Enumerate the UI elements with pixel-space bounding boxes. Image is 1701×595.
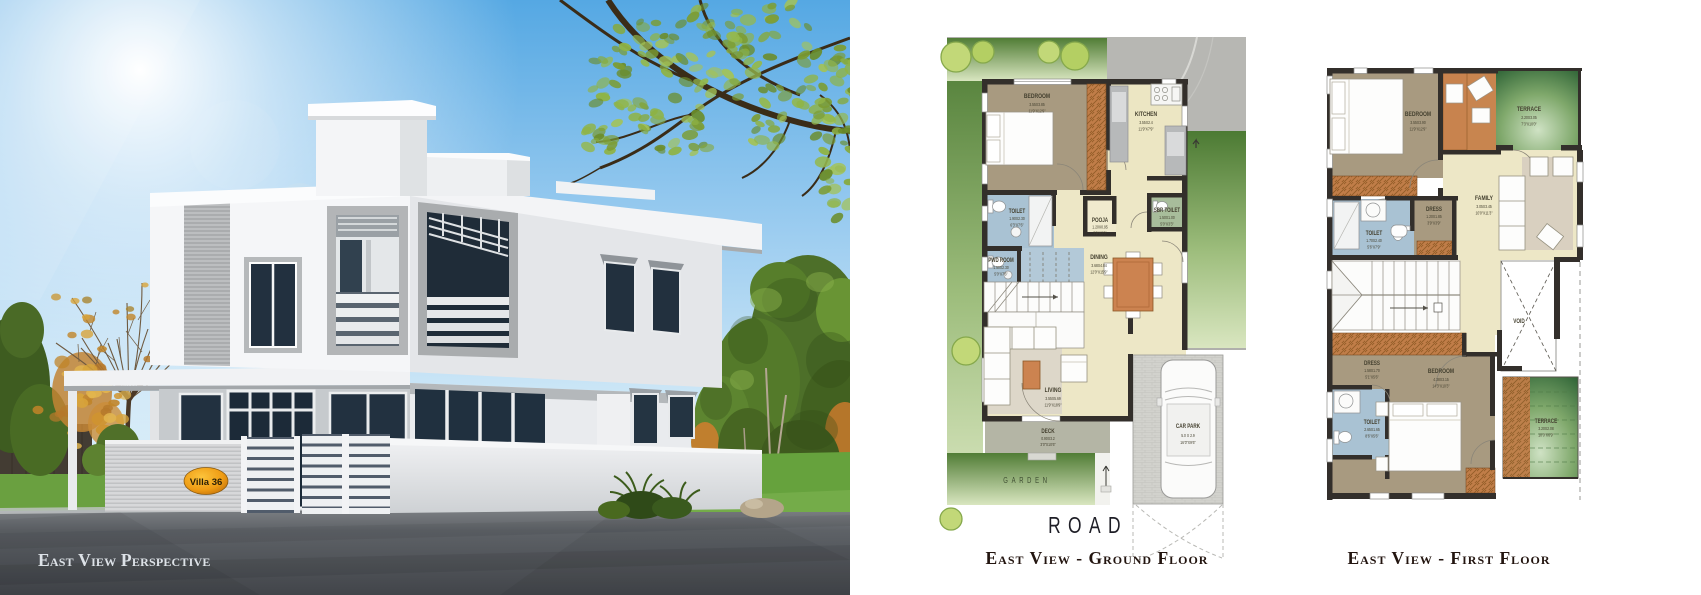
svg-text:1.20X0.95: 1.20X0.95	[1092, 224, 1108, 230]
svg-text:FAMILY: FAMILY	[1475, 195, 1493, 202]
svg-text:6'3"X7'6": 6'3"X7'6"	[1010, 222, 1024, 228]
svg-text:3'9"X3'0": 3'9"X3'0"	[1093, 230, 1107, 236]
svg-text:14'3"X10'3": 14'3"X10'3"	[1432, 383, 1450, 389]
svg-text:DRESS: DRESS	[1426, 206, 1442, 213]
svg-text:SBR TOILET: SBR TOILET	[1154, 207, 1181, 214]
svg-text:TERRACE: TERRACE	[1517, 106, 1541, 113]
svg-text:BEDROOM: BEDROOM	[1024, 93, 1050, 100]
svg-text:11'9"X7'9": 11'9"X7'9"	[1138, 126, 1154, 132]
svg-text:TOILET: TOILET	[1366, 230, 1383, 237]
svg-text:12'0"X15'9": 12'0"X15'9"	[1090, 269, 1108, 275]
svg-text:10'0"X6'9": 10'0"X6'9"	[1538, 432, 1554, 438]
svg-text:8'6"X5'6": 8'6"X5'6"	[1365, 433, 1379, 439]
svg-text:3.55X3.90: 3.55X3.90	[1410, 119, 1426, 125]
svg-text:PWD ROOM: PWD ROOM	[988, 257, 1014, 264]
svg-text:3.55X3.85: 3.55X3.85	[1029, 101, 1045, 107]
svg-text:5'6"X7'9": 5'6"X7'9"	[1367, 244, 1381, 250]
svg-text:5'0"X7'6": 5'0"X7'6"	[994, 271, 1008, 277]
svg-text:1.90X2.30: 1.90X2.30	[1009, 215, 1025, 221]
svg-text:1.50X1.00: 1.50X1.00	[1159, 214, 1175, 220]
svg-text:1.58X1.70: 1.58X1.70	[1364, 367, 1380, 373]
svg-text:7'3"X10'0": 7'3"X10'0"	[1521, 121, 1537, 127]
svg-text:3'9"X3'9": 3'9"X3'9"	[1427, 220, 1441, 226]
svg-text:10'0"X11'3": 10'0"X11'3"	[1475, 210, 1493, 216]
svg-text:11'9"X12'9": 11'9"X12'9"	[1028, 108, 1046, 114]
svg-text:TOILET: TOILET	[1009, 208, 1026, 215]
svg-text:DECK: DECK	[1041, 428, 1054, 435]
svg-text:TOILET: TOILET	[1364, 419, 1381, 426]
svg-text:3.55X2.4: 3.55X2.4	[1139, 119, 1153, 125]
svg-text:16'0"X9'6": 16'0"X9'6"	[1180, 439, 1196, 445]
svg-text:East View Perspective: East View Perspective	[38, 550, 211, 570]
svg-text:2.65X1.65: 2.65X1.65	[1364, 426, 1380, 432]
svg-text:4.38X3.15: 4.38X3.15	[1433, 376, 1449, 382]
svg-text:BEDROOM: BEDROOM	[1405, 111, 1431, 118]
svg-text:3.68X4.84: 3.68X4.84	[1091, 262, 1107, 268]
svg-text:3'0"X10'6": 3'0"X10'6"	[1040, 441, 1056, 447]
svg-text:1.50X2.30: 1.50X2.30	[993, 264, 1009, 270]
svg-text:Villa 36: Villa 36	[190, 477, 223, 488]
svg-text:DINING: DINING	[1090, 254, 1108, 261]
svg-text:East View - Ground Floor: East View - Ground Floor	[986, 548, 1209, 568]
svg-text:CAR PARK: CAR PARK	[1176, 423, 1200, 430]
svg-text:0.90X3.2: 0.90X3.2	[1041, 435, 1055, 441]
svg-text:LIVING: LIVING	[1045, 387, 1062, 394]
svg-text:5'0"X3'3": 5'0"X3'3"	[1160, 221, 1174, 227]
svg-text:1.20X1.85: 1.20X1.85	[1426, 213, 1442, 219]
svg-text:VOID: VOID	[1513, 318, 1524, 325]
svg-text:11'9"X18'9": 11'9"X18'9"	[1044, 402, 1062, 408]
svg-text:11'9"X12'9": 11'9"X12'9"	[1409, 126, 1427, 132]
svg-text:2.20X3.05: 2.20X3.05	[1521, 114, 1537, 120]
svg-text:ROAD: ROAD	[1048, 513, 1128, 539]
svg-text:1.70X2.40: 1.70X2.40	[1366, 237, 1382, 243]
svg-text:3.05X3.45: 3.05X3.45	[1476, 203, 1492, 209]
svg-text:5'1"X5'6": 5'1"X5'6"	[1365, 374, 1379, 380]
svg-text:GARDEN: GARDEN	[1003, 477, 1050, 485]
svg-text:TERRACE: TERRACE	[1535, 418, 1558, 425]
svg-text:East View - First Floor: East View - First Floor	[1347, 548, 1550, 568]
svg-text:5.0 X 2.9: 5.0 X 2.9	[1181, 432, 1195, 438]
svg-text:3.20X2.08: 3.20X2.08	[1538, 425, 1554, 431]
svg-text:3.55X5.69: 3.55X5.69	[1045, 395, 1061, 401]
svg-text:KITCHEN: KITCHEN	[1135, 111, 1157, 118]
svg-text:BEDROOM: BEDROOM	[1428, 368, 1454, 375]
svg-text:DRESS: DRESS	[1364, 360, 1380, 367]
